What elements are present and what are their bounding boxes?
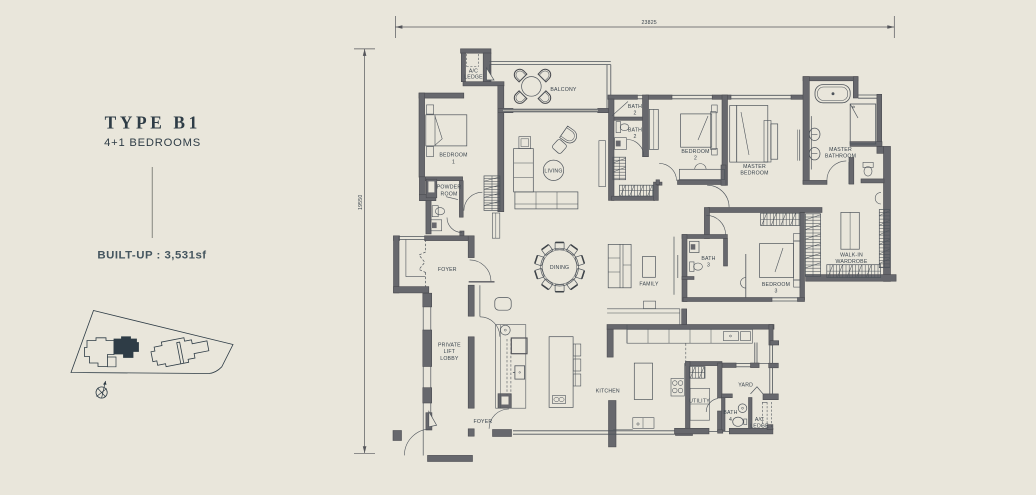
- svg-text:TYPE B1: TYPE B1: [105, 112, 201, 132]
- svg-text:LIFT: LIFT: [444, 349, 456, 355]
- svg-text:FAMILY: FAMILY: [639, 282, 659, 288]
- svg-text:19550: 19550: [358, 195, 364, 210]
- svg-text:WARDROBE: WARDROBE: [836, 259, 868, 265]
- svg-text:BEDROOM: BEDROOM: [762, 282, 790, 288]
- svg-text:FOYER: FOYER: [473, 419, 492, 425]
- svg-text:BEDROOM: BEDROOM: [740, 171, 768, 177]
- svg-text:YARD: YARD: [738, 383, 753, 389]
- svg-text:LEDGE: LEDGE: [464, 75, 483, 81]
- svg-text:BEDROOM: BEDROOM: [681, 149, 709, 155]
- svg-text:4+1 BEDROOMS: 4+1 BEDROOMS: [104, 137, 201, 149]
- svg-text:23825: 23825: [641, 20, 656, 26]
- svg-text:BATH: BATH: [701, 256, 715, 262]
- svg-text:FOYER: FOYER: [438, 267, 457, 273]
- svg-text:PRIVATE: PRIVATE: [438, 342, 461, 348]
- svg-text:LEDGE: LEDGE: [750, 424, 769, 430]
- svg-text:UTILITY: UTILITY: [689, 398, 710, 404]
- svg-text:2: 2: [633, 134, 636, 140]
- svg-text:BUILT-UP : 3,531sf: BUILT-UP : 3,531sf: [97, 249, 206, 261]
- svg-text:KITCHEN: KITCHEN: [596, 389, 620, 395]
- svg-text:4: 4: [729, 417, 732, 423]
- svg-text:BATHROOM: BATHROOM: [825, 154, 856, 160]
- svg-text:LIVING: LIVING: [544, 168, 562, 174]
- svg-text:BATH: BATH: [723, 410, 737, 416]
- svg-text:DINING: DINING: [550, 265, 569, 271]
- svg-text:MASTER: MASTER: [829, 147, 852, 153]
- svg-text:BATH: BATH: [628, 127, 642, 133]
- svg-text:BALCONY: BALCONY: [550, 87, 577, 93]
- svg-text:1: 1: [452, 159, 455, 165]
- svg-text:ROOM: ROOM: [441, 191, 458, 197]
- svg-text:BATH: BATH: [628, 104, 642, 110]
- svg-text:A/C: A/C: [469, 69, 478, 75]
- svg-text:3: 3: [707, 263, 710, 269]
- svg-text:BEDROOM: BEDROOM: [439, 153, 467, 159]
- svg-text:MASTER: MASTER: [743, 164, 766, 170]
- svg-text:3: 3: [774, 289, 777, 295]
- svg-text:2: 2: [633, 111, 636, 117]
- svg-text:2: 2: [694, 156, 697, 162]
- svg-text:POWDER: POWDER: [437, 185, 462, 191]
- svg-text:LOBBY: LOBBY: [440, 356, 459, 362]
- svg-text:WALK-IN: WALK-IN: [840, 252, 863, 258]
- svg-text:A/C: A/C: [755, 417, 764, 423]
